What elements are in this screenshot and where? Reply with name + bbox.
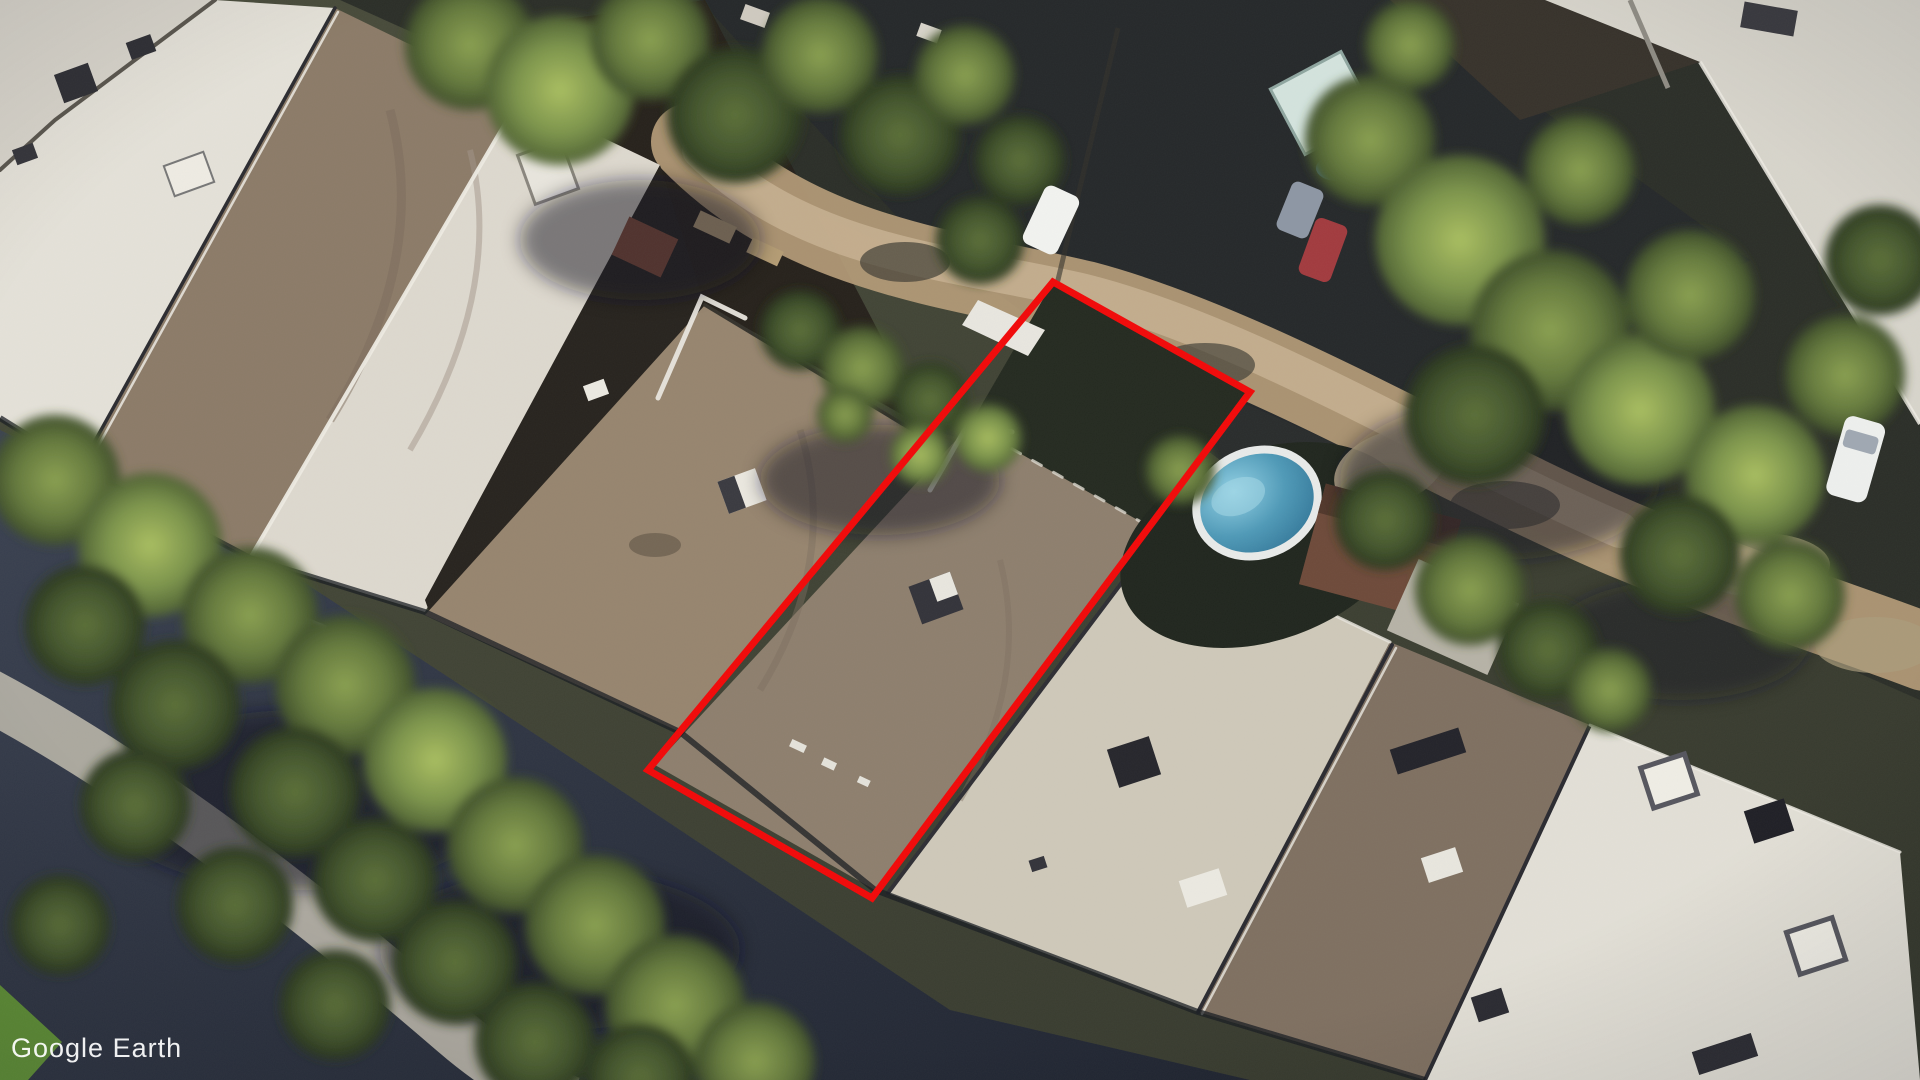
aerial-map-canvas[interactable]: Google Earth [0, 0, 1920, 1080]
google-earth-watermark: Google Earth [11, 1033, 182, 1063]
grain-overlay [0, 0, 1920, 1080]
google-earth-viewport[interactable]: Google Earth [0, 0, 1920, 1080]
